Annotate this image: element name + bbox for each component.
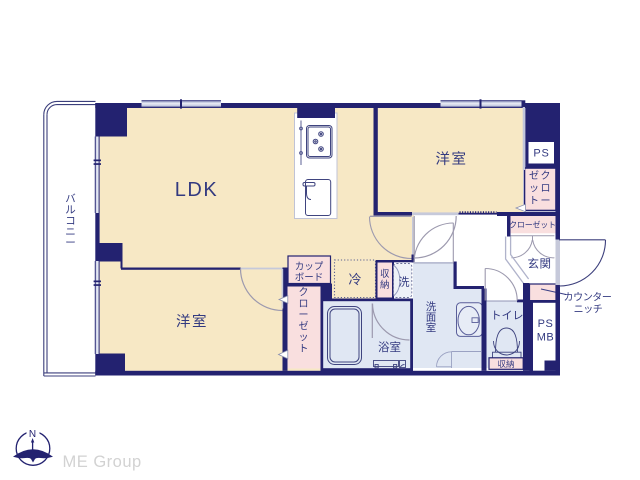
svg-text:ッ: ッ [299,333,309,344]
svg-text:ロ: ロ [299,299,309,310]
svg-text:ニッチ: ニッチ [574,304,603,316]
svg-text:クローゼット: クローゼット [509,220,556,230]
svg-text:ゼ: ゼ [299,320,309,332]
svg-text:ッ: ッ [529,184,539,195]
svg-text:ク: ク [541,170,551,182]
svg-text:カップ: カップ [295,262,324,273]
svg-text:洋室: 洋室 [176,314,208,331]
svg-text:カウンター: カウンター [564,292,612,304]
svg-text:納: 納 [380,279,390,291]
svg-text:ME Group: ME Group [63,453,142,471]
svg-text:ー: ー [299,310,309,321]
svg-text:ー: ー [541,196,551,207]
svg-text:室: 室 [426,321,437,334]
svg-text:収納: 収納 [497,359,514,369]
svg-text:LDK: LDK [175,179,218,201]
svg-text:MB: MB [537,332,555,344]
svg-text:収: 収 [380,268,390,280]
svg-text:トイレ: トイレ [491,310,524,322]
svg-text:ク: ク [299,287,309,299]
svg-text:ト: ト [299,344,309,355]
svg-text:洋室: 洋室 [436,151,468,168]
svg-text:ト: ト [529,196,539,207]
svg-text:浴室: 浴室 [378,340,401,354]
svg-text:PS: PS [538,318,554,330]
svg-text:冷: 冷 [348,272,361,287]
svg-text:ロ: ロ [541,184,551,195]
svg-text:玄関: 玄関 [528,257,552,271]
svg-text:ゼ: ゼ [529,170,539,182]
svg-text:ボード: ボード [295,273,324,284]
svg-text:洗: 洗 [399,276,410,289]
svg-text:ー: ー [65,237,76,249]
svg-text:PS: PS [533,148,549,160]
